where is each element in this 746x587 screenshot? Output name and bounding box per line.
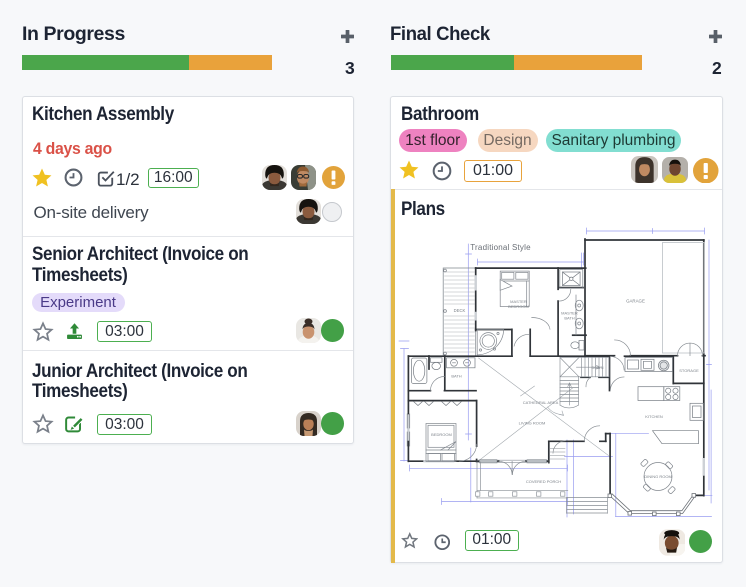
- svg-text:CATHEDRAL AREA: CATHEDRAL AREA: [522, 400, 558, 405]
- svg-text:DOWN: DOWN: [591, 366, 603, 370]
- svg-text:DECK: DECK: [453, 308, 465, 313]
- svg-text:LIVING ROOM: LIVING ROOM: [518, 421, 545, 426]
- svg-text:BEDROOM: BEDROOM: [508, 304, 529, 309]
- svg-text:Traditional Style: Traditional Style: [470, 243, 531, 252]
- svg-text:GARAGE: GARAGE: [626, 299, 645, 304]
- svg-text:BEDROOM: BEDROOM: [431, 432, 452, 437]
- svg-text:BATH: BATH: [451, 374, 461, 379]
- svg-text:DINING ROOM: DINING ROOM: [644, 474, 672, 479]
- svg-text:BATH: BATH: [564, 316, 574, 321]
- svg-text:COVERED PORCH: COVERED PORCH: [525, 479, 560, 484]
- svg-text:KITCHEN: KITCHEN: [645, 414, 663, 419]
- svg-text:STORAGE: STORAGE: [679, 368, 699, 373]
